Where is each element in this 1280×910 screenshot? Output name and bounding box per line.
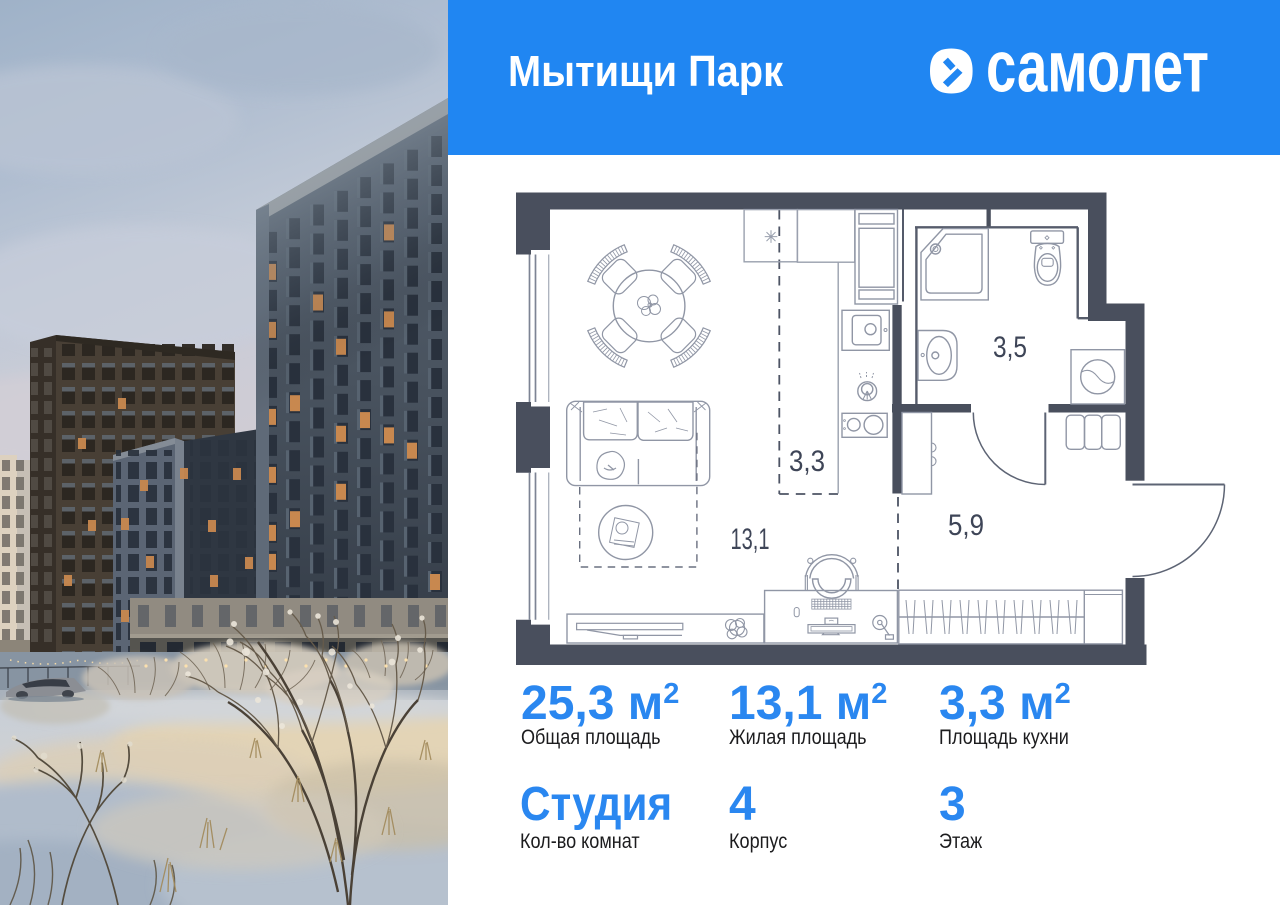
svg-text:5,9: 5,9 — [948, 509, 984, 542]
svg-text:13,1: 13,1 — [731, 523, 770, 556]
svg-text:3,5: 3,5 — [993, 331, 1027, 364]
svg-text:3,3: 3,3 — [789, 445, 825, 478]
svg-text:самолет: самолет — [986, 47, 1209, 99]
svg-text:Мытищи Парк: Мытищи Парк — [508, 47, 784, 96]
